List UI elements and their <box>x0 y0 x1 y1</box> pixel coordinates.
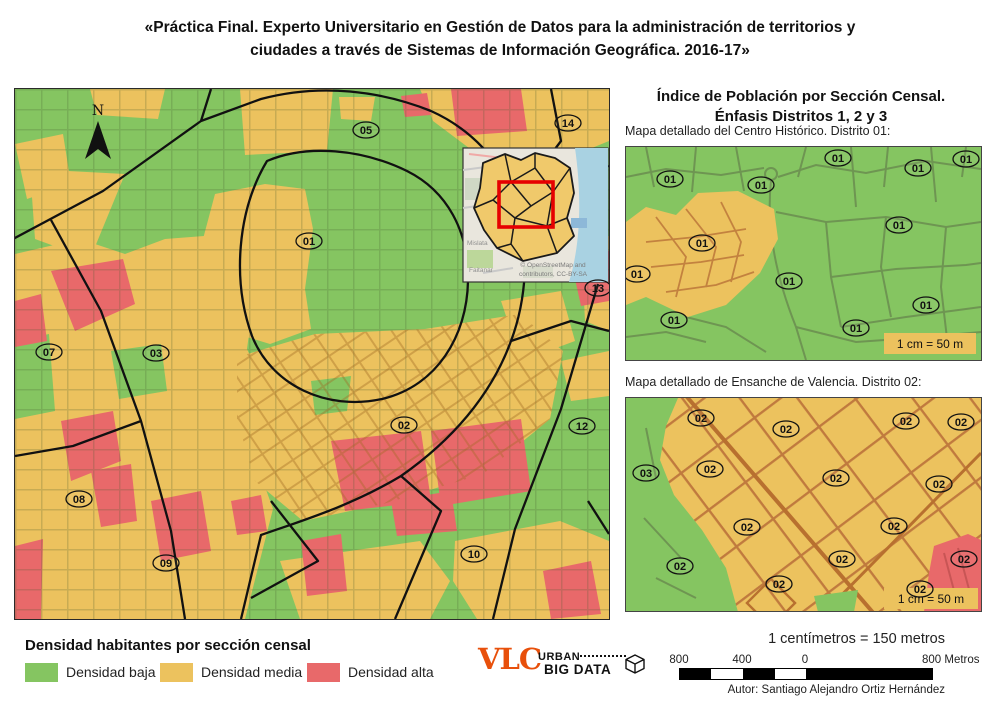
district-number-label: 02 <box>951 551 977 567</box>
document-title-line2: ciudades a través de Sistemas de Informa… <box>250 42 750 59</box>
scalebar-tick-800: 800 <box>661 654 697 666</box>
svg-text:02: 02 <box>695 413 707 425</box>
document-title-line1: «Práctica Final. Experto Universitario e… <box>145 19 856 36</box>
svg-text:13: 13 <box>592 283 604 295</box>
district-number-label: 13 <box>585 280 609 296</box>
svg-text:09: 09 <box>160 558 172 570</box>
district-number-label: 01 <box>626 266 650 282</box>
district01-map-caption: Mapa detallado del Centro Histórico. Dis… <box>625 124 890 138</box>
legend-item-medium: Densidad media <box>160 662 302 682</box>
svg-text:1 cm = 50 m: 1 cm = 50 m <box>897 337 963 351</box>
svg-text:10: 10 <box>468 549 480 561</box>
svg-text:02: 02 <box>704 464 716 476</box>
district01-map-canvas: 1 cm = 50 m 010101010101010101010101 <box>626 147 981 360</box>
svg-text:01: 01 <box>783 276 795 288</box>
district-number-label: 02 <box>391 417 417 433</box>
svg-text:01: 01 <box>832 153 844 165</box>
osm-attribution-line1: © OpenStreetMap and <box>520 261 586 269</box>
district-number-label: 10 <box>461 546 487 562</box>
svg-text:02: 02 <box>958 554 970 566</box>
district-number-label: 02 <box>734 519 760 535</box>
detail1-scale-note: 1 cm = 50 m <box>884 333 976 354</box>
svg-text:02: 02 <box>741 522 753 534</box>
svg-text:01: 01 <box>696 238 708 250</box>
inset-place-label-2: Faitanar <box>469 267 494 274</box>
district-number-label: 01 <box>913 297 939 313</box>
district-number-label: 01 <box>657 171 683 187</box>
district-number-label: 02 <box>829 551 855 567</box>
svg-text:03: 03 <box>640 468 652 480</box>
legend-swatch-medium <box>160 663 193 682</box>
main-density-map: N Mislata Faitanar © Ope <box>14 88 610 620</box>
osm-attribution-line2: contributors, CC-BY-SA <box>519 271 588 278</box>
district-number-label: 09 <box>153 555 179 571</box>
scalebar-segment <box>775 669 806 679</box>
svg-text:01: 01 <box>850 323 862 335</box>
legend-label-low: Densidad baja <box>66 664 156 680</box>
cube-icon <box>624 653 646 675</box>
district-number-label: 01 <box>689 235 715 251</box>
district-number-label: 02 <box>766 576 792 592</box>
district02-map-canvas: 1 cm = 50 m 0202020203020202020202020202… <box>626 398 981 611</box>
svg-text:01: 01 <box>912 163 924 175</box>
svg-text:01: 01 <box>893 220 905 232</box>
north-label: N <box>92 103 104 119</box>
vlc-urban-big-data-logo: VLC URBAN BIG DATA <box>478 645 653 687</box>
right-panel-title-line2: Énfasis Distritos 1, 2 y 3 <box>715 108 888 125</box>
district-number-label: 02 <box>907 581 933 597</box>
district-number-label: 07 <box>36 344 62 360</box>
author-credit: Autor: Santiago Alejandro Ortiz Hernánde… <box>600 684 945 696</box>
logo-vlc-text: VLC <box>478 645 541 674</box>
district-number-label: 01 <box>905 160 931 176</box>
svg-text:01: 01 <box>664 174 676 186</box>
district02-detail-map: 1 cm = 50 m 0202020203020202020202020202… <box>625 397 982 612</box>
scalebar-segment <box>711 669 743 679</box>
district-number-label: 03 <box>143 345 169 361</box>
svg-text:02: 02 <box>914 584 926 596</box>
district-number-label: 02 <box>667 558 693 574</box>
district02-map-caption: Mapa detallado de Ensanche de Valencia. … <box>625 375 921 389</box>
svg-text:01: 01 <box>960 154 972 166</box>
main-map-canvas: N Mislata Faitanar © Ope <box>15 89 609 619</box>
district-number-label: 01 <box>661 312 687 328</box>
right-panel-title: Índice de Población por Sección Censal. … <box>618 87 984 128</box>
scalebar <box>679 668 933 680</box>
district-number-label: 02 <box>948 414 974 430</box>
legend-item-high: Densidad alta <box>307 662 434 682</box>
district-number-label: 05 <box>353 122 379 138</box>
svg-text:02: 02 <box>398 420 410 432</box>
svg-text:14: 14 <box>562 118 575 130</box>
district-number-label: 01 <box>843 320 869 336</box>
district01-detail-map: 1 cm = 50 m 010101010101010101010101 <box>625 146 982 361</box>
district-number-label: 02 <box>926 476 952 492</box>
district-number-label: 08 <box>66 491 92 507</box>
svg-text:01: 01 <box>631 269 643 281</box>
svg-text:12: 12 <box>576 421 588 433</box>
svg-text:02: 02 <box>773 579 785 591</box>
logo-bigdata-text: BIG DATA <box>544 662 611 677</box>
district-number-label: 12 <box>569 418 595 434</box>
district-number-label: 01 <box>825 150 851 166</box>
scalebar-end-label: 800 Metros <box>922 654 980 666</box>
legend-label-medium: Densidad media <box>201 664 302 680</box>
svg-text:02: 02 <box>830 473 842 485</box>
district-number-label: 01 <box>886 217 912 233</box>
logo-dotted-line <box>580 655 626 657</box>
document-title: «Práctica Final. Experto Universitario e… <box>30 16 970 63</box>
scalebar-tick-400: 400 <box>724 654 760 666</box>
scalebar-segment <box>806 669 932 679</box>
district-number-label: 02 <box>773 421 799 437</box>
inset-place-label-1: Mislata <box>467 240 488 247</box>
svg-text:08: 08 <box>73 494 85 506</box>
scale-equation: 1 centímetros = 150 metros <box>700 631 945 647</box>
legend-item-low: Densidad baja <box>25 662 156 682</box>
district-number-label: 01 <box>776 273 802 289</box>
legend-title: Densidad habitantes por sección censal <box>25 637 311 654</box>
district-number-label: 01 <box>953 151 979 167</box>
district-number-label: 02 <box>697 461 723 477</box>
district-number-label: 02 <box>893 413 919 429</box>
district-number-label: 02 <box>688 410 714 426</box>
svg-text:02: 02 <box>900 416 912 428</box>
right-panel-title-line1: Índice de Población por Sección Censal. <box>657 88 945 105</box>
scalebar-segment <box>743 669 775 679</box>
legend-label-high: Densidad alta <box>348 664 434 680</box>
svg-text:01: 01 <box>755 180 767 192</box>
district-number-label: 02 <box>823 470 849 486</box>
svg-text:02: 02 <box>933 479 945 491</box>
scalebar-tick-0: 0 <box>787 654 823 666</box>
scalebar-segment <box>680 669 711 679</box>
svg-text:07: 07 <box>43 347 55 359</box>
svg-text:05: 05 <box>360 125 372 137</box>
svg-text:02: 02 <box>955 417 967 429</box>
district-number-label: 03 <box>633 465 659 481</box>
svg-text:01: 01 <box>920 300 932 312</box>
svg-text:01: 01 <box>303 236 315 248</box>
svg-text:02: 02 <box>780 424 792 436</box>
map-layout-page: «Práctica Final. Experto Universitario e… <box>0 0 1000 708</box>
district-number-label: 14 <box>555 115 581 131</box>
legend-swatch-low <box>25 663 58 682</box>
svg-text:02: 02 <box>888 521 900 533</box>
district-number-label: 01 <box>296 233 322 249</box>
district-number-label: 02 <box>881 518 907 534</box>
svg-text:01: 01 <box>668 315 680 327</box>
legend-swatch-high <box>307 663 340 682</box>
svg-text:02: 02 <box>674 561 686 573</box>
svg-text:03: 03 <box>150 348 162 360</box>
district-number-label: 01 <box>748 177 774 193</box>
svg-text:02: 02 <box>836 554 848 566</box>
inset-locator-map: Mislata Faitanar © OpenStreetMap and con… <box>463 148 608 282</box>
